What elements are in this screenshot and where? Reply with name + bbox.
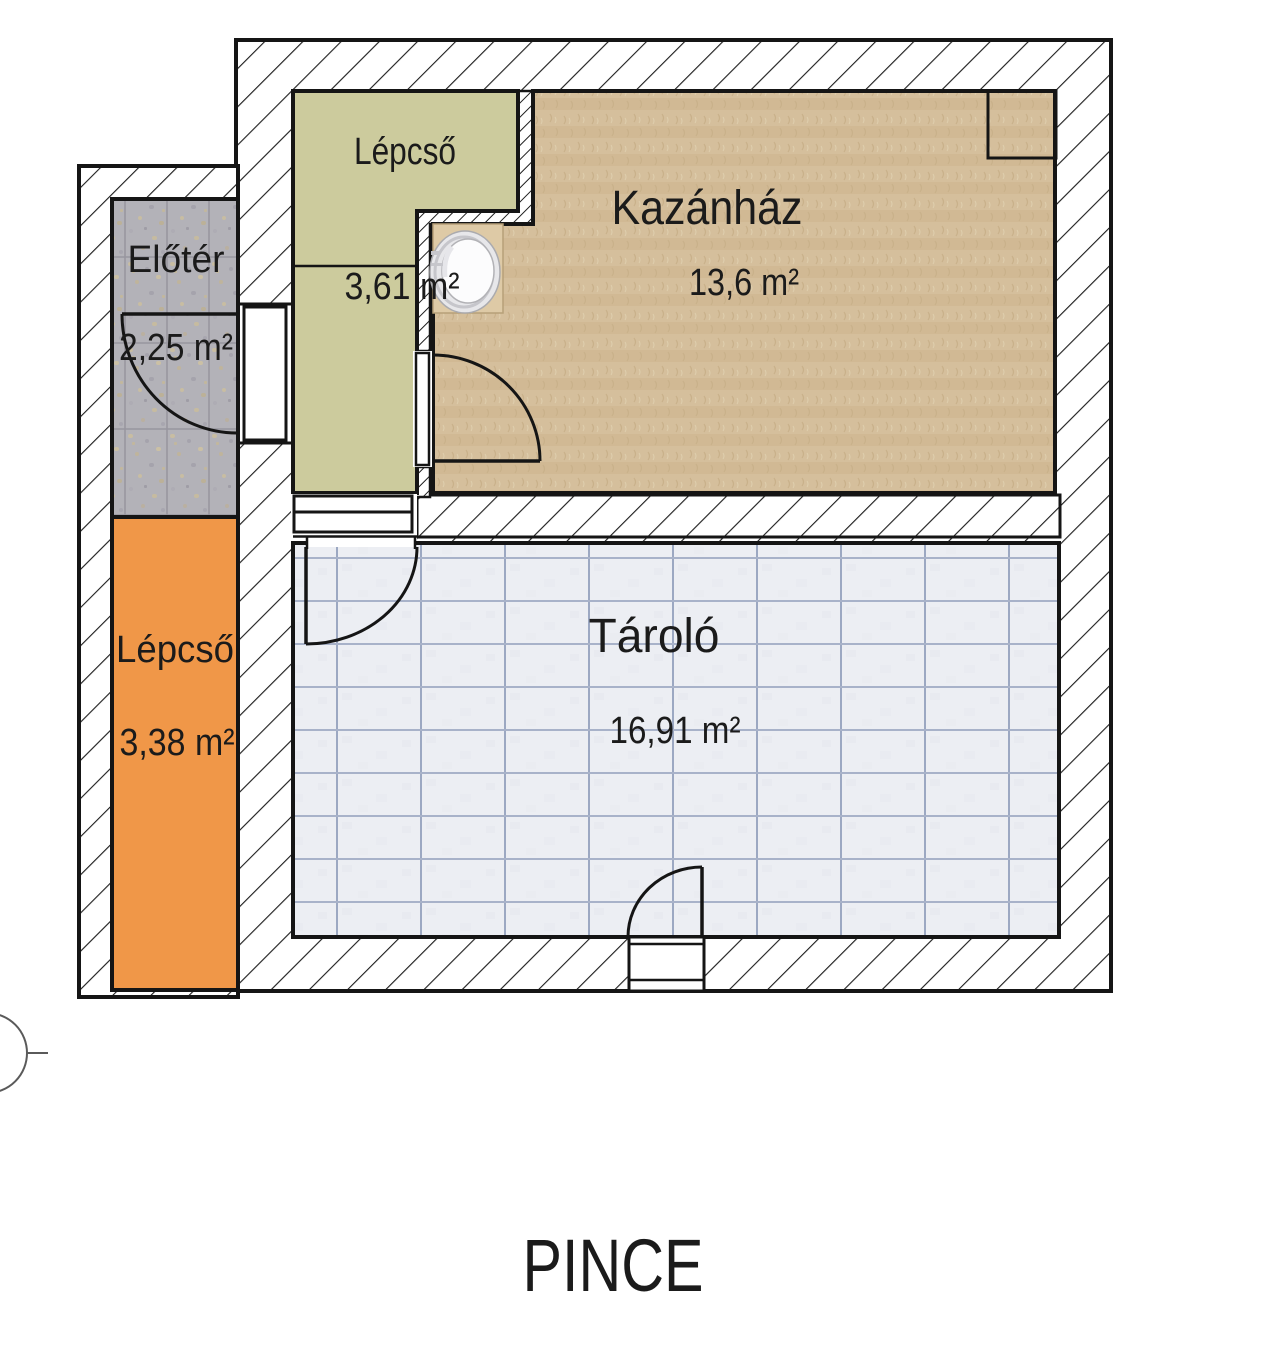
svg-text:Kazánház: Kazánház bbox=[612, 182, 803, 235]
svg-text:3,61 m²: 3,61 m² bbox=[345, 266, 460, 308]
svg-text:Lépcső: Lépcső bbox=[354, 131, 456, 173]
svg-text:PINCE: PINCE bbox=[523, 1224, 704, 1307]
svg-text:3,38 m²: 3,38 m² bbox=[120, 722, 235, 764]
svg-text:16,91 m²: 16,91 m² bbox=[610, 710, 741, 752]
svg-text:Tároló: Tároló bbox=[589, 610, 720, 663]
svg-text:Előtér: Előtér bbox=[128, 239, 225, 281]
svg-text:Lépcső: Lépcső bbox=[116, 629, 234, 671]
svg-text:2,25 m²: 2,25 m² bbox=[119, 327, 233, 369]
svg-text:13,6 m²: 13,6 m² bbox=[689, 262, 799, 304]
